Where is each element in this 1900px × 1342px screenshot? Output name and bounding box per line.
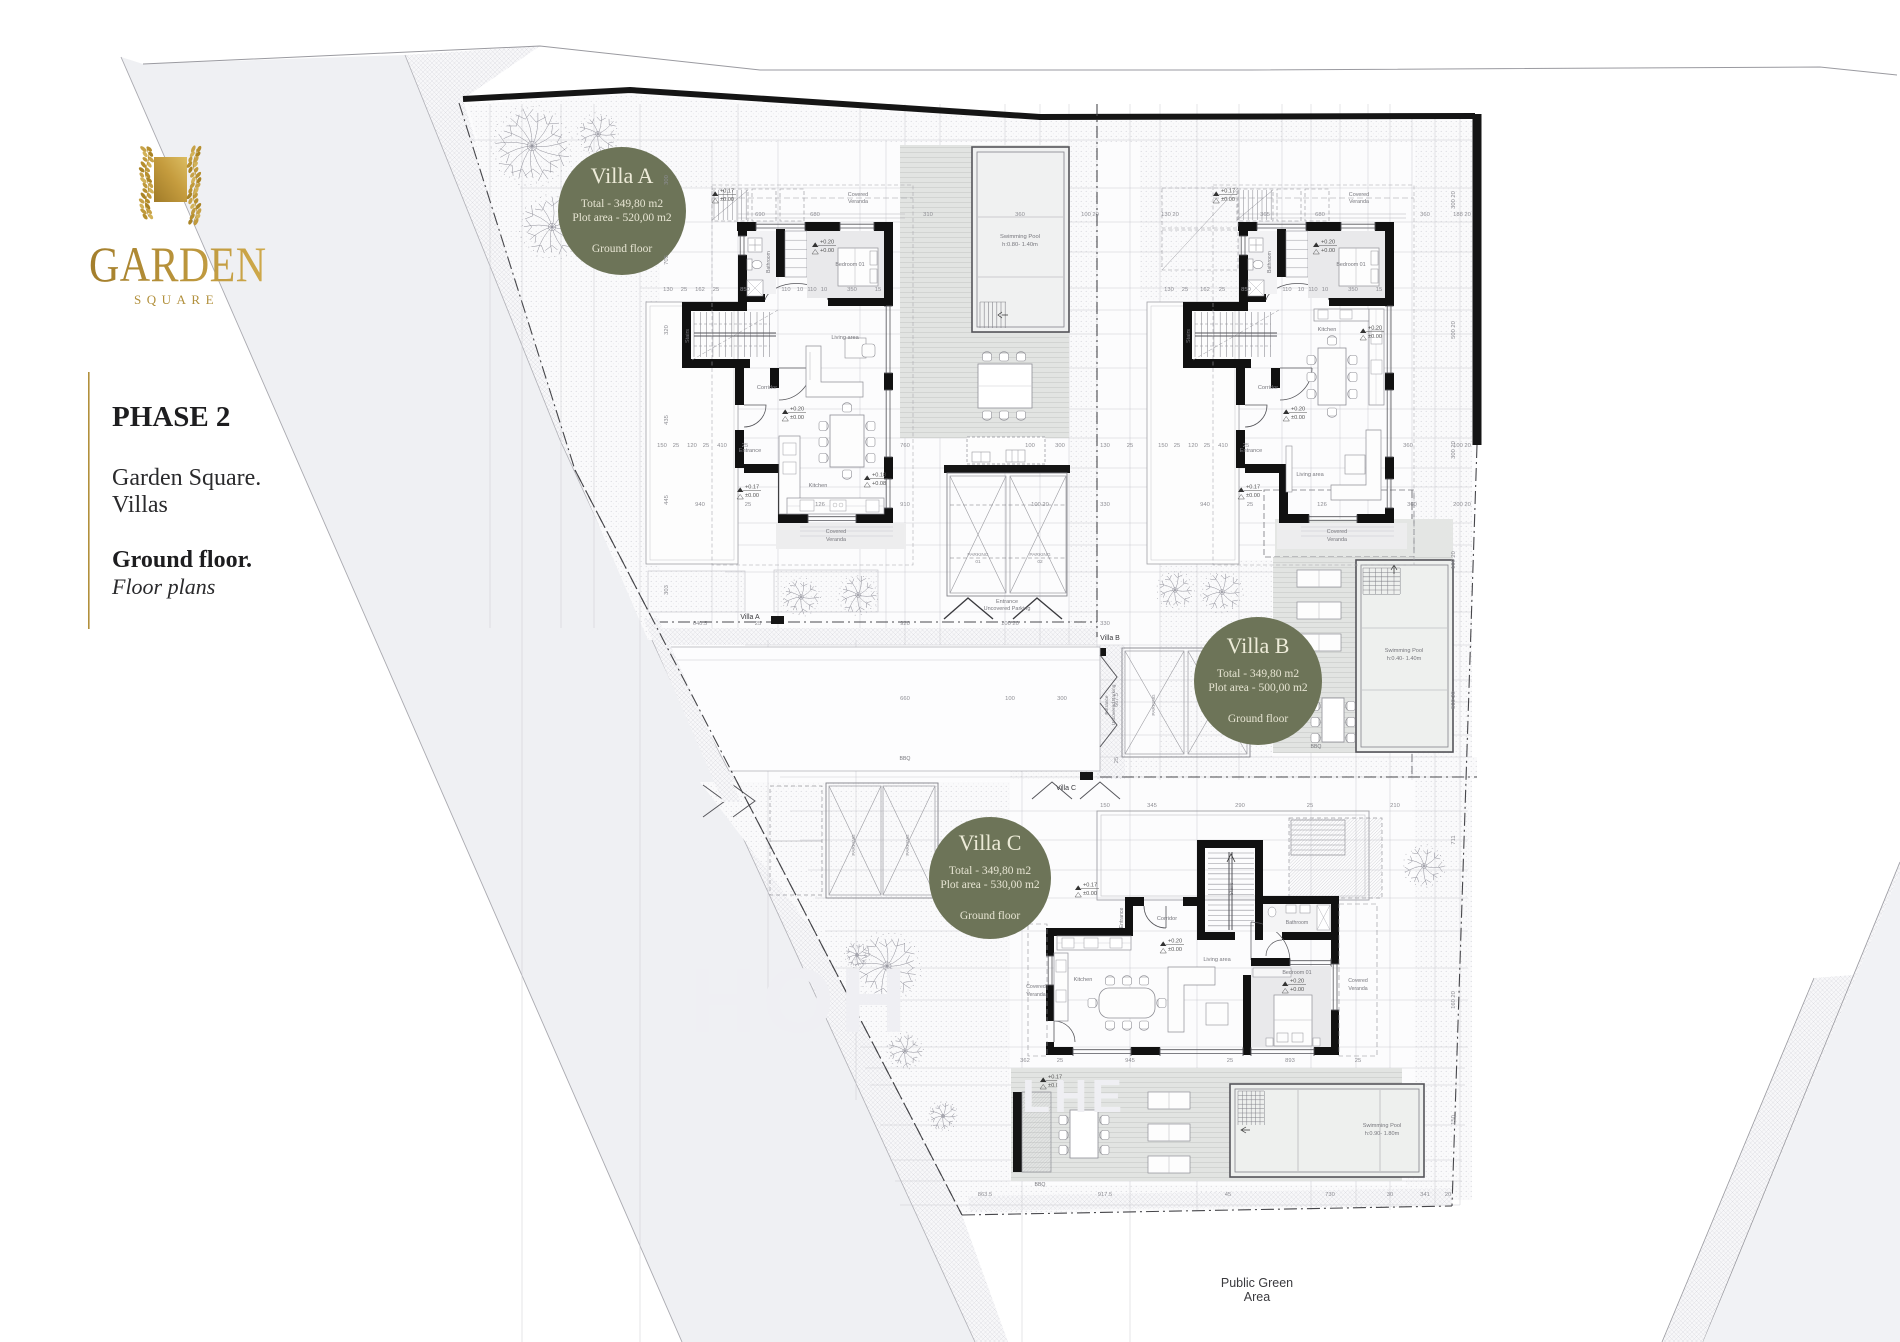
svg-text:+0.17: +0.17 bbox=[720, 189, 734, 195]
svg-text:130: 130 bbox=[1164, 287, 1174, 293]
svg-text:Kitchen: Kitchen bbox=[1318, 327, 1337, 333]
svg-text:Ground floor: Ground floor bbox=[960, 910, 1021, 922]
svg-text:h:0.90- 1.80m: h:0.90- 1.80m bbox=[1365, 1131, 1400, 1137]
svg-text:Ground floor.: Ground floor. bbox=[112, 547, 252, 573]
svg-text:PARKING: PARKING bbox=[1029, 552, 1051, 558]
svg-text:Villa B: Villa B bbox=[1100, 635, 1120, 642]
svg-text:Bathroom: Bathroom bbox=[1267, 251, 1273, 273]
svg-text:410: 410 bbox=[717, 443, 727, 449]
svg-text:25: 25 bbox=[1127, 443, 1133, 449]
svg-text:+0.20: +0.20 bbox=[1291, 407, 1305, 413]
svg-text:h:0.40- 1.40m: h:0.40- 1.40m bbox=[1387, 656, 1422, 662]
svg-text:Bedroom 01: Bedroom 01 bbox=[835, 262, 864, 268]
svg-text:680: 680 bbox=[810, 212, 820, 218]
svg-text:01: 01 bbox=[975, 559, 981, 565]
svg-text:+0.20: +0.20 bbox=[1290, 979, 1304, 985]
svg-text:910: 910 bbox=[900, 502, 910, 508]
svg-text:+0.17: +0.17 bbox=[1083, 883, 1097, 889]
svg-text:410: 410 bbox=[1218, 443, 1228, 449]
svg-text:10: 10 bbox=[797, 287, 803, 293]
svg-text:45: 45 bbox=[1225, 1192, 1231, 1198]
svg-text:350: 350 bbox=[847, 287, 857, 293]
svg-text:300 20: 300 20 bbox=[1451, 441, 1457, 459]
svg-text:120: 120 bbox=[1188, 443, 1198, 449]
svg-text:Covered: Covered bbox=[1349, 192, 1369, 198]
svg-text:210: 210 bbox=[1390, 803, 1400, 809]
svg-text:25: 25 bbox=[681, 287, 687, 293]
svg-text:+0.17: +0.17 bbox=[1246, 485, 1260, 491]
svg-text:Living area: Living area bbox=[831, 335, 859, 341]
svg-text:362: 362 bbox=[1020, 1058, 1030, 1064]
svg-text:±0.00: ±0.00 bbox=[1246, 493, 1260, 499]
svg-text:310: 310 bbox=[923, 212, 933, 218]
svg-text:730: 730 bbox=[1325, 1192, 1335, 1198]
svg-text:341: 341 bbox=[1420, 1192, 1430, 1198]
svg-text:±0.00: ±0.00 bbox=[790, 415, 804, 421]
svg-text:±0.00: ±0.00 bbox=[745, 493, 759, 499]
svg-text:640.5: 640.5 bbox=[693, 621, 708, 627]
svg-text:160 20: 160 20 bbox=[1451, 991, 1457, 1009]
svg-text:360: 360 bbox=[1420, 212, 1430, 218]
svg-text:300: 300 bbox=[664, 175, 670, 185]
svg-text:445: 445 bbox=[664, 495, 670, 505]
svg-text:25: 25 bbox=[1219, 287, 1225, 293]
svg-text:Entrance: Entrance bbox=[1104, 695, 1110, 715]
svg-text:+0.20: +0.20 bbox=[1321, 240, 1335, 246]
svg-text:300: 300 bbox=[1057, 696, 1067, 702]
svg-text:365: 365 bbox=[1260, 212, 1270, 218]
svg-text:320: 320 bbox=[664, 325, 670, 335]
svg-text:+0.20: +0.20 bbox=[820, 240, 834, 246]
svg-text:BBQ: BBQ bbox=[900, 756, 911, 762]
svg-text:GARDEN: GARDEN bbox=[89, 237, 266, 292]
svg-text:LHE: LHE bbox=[1022, 1070, 1126, 1122]
svg-text:150: 150 bbox=[1158, 443, 1168, 449]
svg-text:Swimming Pool: Swimming Pool bbox=[1363, 1123, 1402, 1129]
svg-text:Villa A: Villa A bbox=[740, 614, 760, 621]
svg-text:188 20: 188 20 bbox=[1453, 212, 1471, 218]
svg-text:150: 150 bbox=[1451, 1115, 1457, 1125]
svg-text:945: 945 bbox=[1125, 1058, 1135, 1064]
svg-text:+0.17: +0.17 bbox=[745, 485, 759, 491]
svg-text:100 20: 100 20 bbox=[1031, 502, 1049, 508]
svg-text:330: 330 bbox=[1100, 621, 1110, 627]
svg-text:200 20: 200 20 bbox=[1453, 502, 1471, 508]
svg-text:290: 290 bbox=[1235, 803, 1245, 809]
svg-text:110: 110 bbox=[1308, 287, 1317, 293]
svg-text:940: 940 bbox=[1200, 502, 1210, 508]
svg-text:705: 705 bbox=[664, 255, 670, 265]
svg-text:893: 893 bbox=[1285, 1058, 1295, 1064]
svg-text:Veranda: Veranda bbox=[848, 199, 868, 205]
svg-text:350: 350 bbox=[1348, 287, 1358, 293]
svg-text:Public Green: Public Green bbox=[1221, 1276, 1293, 1290]
svg-text:Corridor: Corridor bbox=[1258, 385, 1278, 391]
svg-text:Entrance: Entrance bbox=[996, 599, 1018, 605]
svg-text:Total - 349,80 m2: Total - 349,80 m2 bbox=[949, 865, 1031, 877]
svg-text:±0.00: ±0.00 bbox=[1291, 415, 1305, 421]
svg-text:500 20: 500 20 bbox=[1451, 321, 1457, 339]
svg-text:711: 711 bbox=[1451, 835, 1457, 844]
svg-text:100 20: 100 20 bbox=[1081, 212, 1099, 218]
svg-text:+0.20: +0.20 bbox=[1168, 939, 1182, 945]
svg-text:+0.08: +0.08 bbox=[872, 481, 886, 487]
svg-text:850: 850 bbox=[740, 287, 750, 293]
svg-text:25: 25 bbox=[755, 621, 761, 627]
svg-text:Veranda: Veranda bbox=[1349, 199, 1369, 205]
svg-text:+0.20: +0.20 bbox=[1368, 326, 1382, 332]
svg-text:360: 360 bbox=[1407, 502, 1417, 508]
svg-text:PARKING: PARKING bbox=[851, 834, 857, 856]
svg-text:30: 30 bbox=[1387, 1192, 1393, 1198]
svg-text:Living area: Living area bbox=[1296, 472, 1324, 478]
svg-text:100 20: 100 20 bbox=[1001, 621, 1019, 627]
svg-text:300 20: 300 20 bbox=[1451, 191, 1457, 209]
svg-text:Stairs: Stairs bbox=[1186, 329, 1192, 343]
svg-text:10: 10 bbox=[821, 287, 827, 293]
svg-text:+0.20: +0.20 bbox=[790, 407, 804, 413]
svg-text:25: 25 bbox=[745, 502, 751, 508]
svg-text:920: 920 bbox=[900, 621, 910, 627]
svg-text:360: 360 bbox=[1015, 212, 1025, 218]
svg-text:+0.00: +0.00 bbox=[820, 248, 834, 254]
svg-text:150: 150 bbox=[1100, 803, 1110, 809]
svg-text:h:0.80- 1.40m: h:0.80- 1.40m bbox=[1002, 242, 1038, 248]
svg-text:Corridor: Corridor bbox=[757, 385, 777, 391]
svg-text:500 20: 500 20 bbox=[1451, 691, 1457, 709]
svg-text:Floor plans: Floor plans bbox=[111, 574, 215, 599]
svg-text:100: 100 bbox=[1005, 696, 1015, 702]
svg-text:Bedroom 01: Bedroom 01 bbox=[1336, 262, 1365, 268]
svg-text:Covered: Covered bbox=[848, 192, 868, 198]
svg-text:Villa C: Villa C bbox=[959, 830, 1022, 855]
svg-text:303: 303 bbox=[664, 585, 670, 595]
svg-text:25: 25 bbox=[1243, 443, 1249, 449]
svg-text:150: 150 bbox=[657, 443, 667, 449]
svg-text:25: 25 bbox=[673, 443, 679, 449]
svg-text:20: 20 bbox=[1445, 1192, 1451, 1198]
svg-text:863.5: 863.5 bbox=[978, 1192, 993, 1198]
svg-text:BBQ: BBQ bbox=[1035, 1182, 1046, 1188]
svg-text:Ground floor: Ground floor bbox=[1228, 713, 1289, 725]
svg-text:25: 25 bbox=[1355, 1058, 1361, 1064]
svg-text:±0.00: ±0.00 bbox=[1221, 197, 1235, 203]
svg-text:Veranda: Veranda bbox=[1348, 986, 1367, 992]
svg-text:760: 760 bbox=[900, 443, 910, 449]
svg-text:25: 25 bbox=[1247, 502, 1253, 508]
svg-text:110: 110 bbox=[781, 287, 790, 293]
svg-text:HOH: HOH bbox=[690, 950, 912, 1052]
svg-text:Entrance: Entrance bbox=[1119, 908, 1125, 929]
svg-text:±0.00: ±0.00 bbox=[1083, 891, 1097, 897]
svg-text:Veranda: Veranda bbox=[826, 537, 846, 543]
svg-text:Plot area - 530,00 m2: Plot area - 530,00 m2 bbox=[940, 879, 1040, 891]
svg-text:10: 10 bbox=[1322, 287, 1328, 293]
svg-text:±0.00: ±0.00 bbox=[720, 197, 734, 203]
svg-text:Kitchen: Kitchen bbox=[1074, 977, 1093, 983]
svg-text:Garden Square.: Garden Square. bbox=[112, 465, 261, 491]
svg-text:PHASE 2: PHASE 2 bbox=[112, 401, 230, 433]
svg-text:Corridor: Corridor bbox=[1157, 916, 1177, 922]
svg-text:345: 345 bbox=[1147, 803, 1157, 809]
svg-text:+0.18: +0.18 bbox=[872, 473, 886, 479]
svg-text:±0.00: ±0.00 bbox=[1168, 947, 1182, 953]
svg-text:110: 110 bbox=[807, 287, 816, 293]
svg-text:Bathroom: Bathroom bbox=[766, 251, 772, 273]
svg-text:130: 130 bbox=[1100, 443, 1110, 449]
svg-text:15: 15 bbox=[875, 287, 881, 293]
svg-text:02: 02 bbox=[1037, 559, 1043, 565]
svg-text:SQUARE: SQUARE bbox=[134, 292, 219, 307]
svg-text:Covered: Covered bbox=[1327, 529, 1347, 535]
svg-text:126: 126 bbox=[1317, 502, 1327, 508]
svg-text:Veranda: Veranda bbox=[1327, 537, 1347, 543]
svg-text:Uncovered Parking: Uncovered Parking bbox=[984, 606, 1031, 612]
svg-text:Villa B: Villa B bbox=[1227, 633, 1290, 658]
svg-text:Stairs: Stairs bbox=[1229, 882, 1235, 896]
svg-text:+0.00: +0.00 bbox=[1321, 248, 1335, 254]
svg-text:130: 130 bbox=[663, 287, 673, 293]
svg-text:Villas: Villas bbox=[112, 492, 168, 518]
svg-text:Total - 349,80 m2: Total - 349,80 m2 bbox=[581, 198, 663, 210]
svg-text:Covered: Covered bbox=[1348, 978, 1368, 984]
svg-text:Bathroom: Bathroom bbox=[1286, 920, 1309, 926]
svg-text:25: 25 bbox=[1174, 443, 1180, 449]
svg-text:25: 25 bbox=[1057, 1058, 1063, 1064]
svg-text:660: 660 bbox=[900, 696, 910, 702]
svg-text:Plot area - 520,00 m2: Plot area - 520,00 m2 bbox=[572, 212, 672, 224]
svg-text:Living area: Living area bbox=[1203, 957, 1231, 963]
svg-text:Swimming Pool: Swimming Pool bbox=[1000, 234, 1040, 240]
svg-text:360: 360 bbox=[1403, 443, 1413, 449]
svg-text:690: 690 bbox=[755, 212, 765, 218]
svg-text:Area: Area bbox=[1244, 1290, 1270, 1304]
svg-text:Stairs: Stairs bbox=[685, 329, 691, 343]
svg-text:667.5: 667.5 bbox=[1114, 693, 1120, 707]
svg-text:162: 162 bbox=[695, 287, 705, 293]
svg-text:120: 120 bbox=[687, 443, 697, 449]
svg-text:25: 25 bbox=[703, 443, 709, 449]
svg-text:25: 25 bbox=[1227, 1058, 1233, 1064]
svg-text:25: 25 bbox=[1204, 443, 1210, 449]
svg-text:10: 10 bbox=[1298, 287, 1304, 293]
svg-text:BBQ: BBQ bbox=[1311, 744, 1322, 750]
svg-text:680: 680 bbox=[1315, 212, 1325, 218]
svg-text:130 20: 130 20 bbox=[1161, 212, 1179, 218]
svg-text:300: 300 bbox=[1055, 443, 1065, 449]
svg-text:25: 25 bbox=[1307, 803, 1313, 809]
svg-text:100: 100 bbox=[1025, 443, 1035, 449]
svg-text:PARKING: PARKING bbox=[967, 552, 989, 558]
svg-text:25: 25 bbox=[1114, 757, 1120, 763]
svg-text:Plot area - 500,00 m2: Plot area - 500,00 m2 bbox=[1208, 682, 1308, 694]
svg-text:25: 25 bbox=[1182, 287, 1188, 293]
svg-text:Villa A: Villa A bbox=[591, 163, 654, 188]
svg-text:15: 15 bbox=[1376, 287, 1382, 293]
svg-text:162: 162 bbox=[1200, 287, 1210, 293]
svg-text:±0.00: ±0.00 bbox=[1368, 334, 1382, 340]
svg-text:435: 435 bbox=[664, 415, 670, 425]
svg-text:Covered: Covered bbox=[826, 529, 846, 535]
svg-text:Kitchen: Kitchen bbox=[809, 483, 828, 489]
svg-text:Swimming Pool: Swimming Pool bbox=[1385, 648, 1424, 654]
svg-text:Total - 349,80 m2: Total - 349,80 m2 bbox=[1217, 668, 1299, 680]
svg-text:PARKING: PARKING bbox=[905, 834, 911, 856]
svg-text:110: 110 bbox=[1282, 287, 1291, 293]
svg-text:PARKING: PARKING bbox=[1151, 694, 1157, 716]
svg-text:100 20: 100 20 bbox=[1451, 551, 1457, 569]
svg-text:940: 940 bbox=[695, 502, 705, 508]
svg-text:Veranda: Veranda bbox=[1026, 992, 1045, 998]
svg-text:Bedroom 01: Bedroom 01 bbox=[1282, 970, 1311, 976]
svg-text:330: 330 bbox=[1100, 502, 1110, 508]
svg-text:Covered: Covered bbox=[1026, 984, 1046, 990]
svg-text:+0.00: +0.00 bbox=[1290, 987, 1304, 993]
svg-text:850: 850 bbox=[1241, 287, 1251, 293]
svg-text:25: 25 bbox=[713, 287, 719, 293]
svg-text:917.5: 917.5 bbox=[1098, 1192, 1113, 1198]
svg-text:126: 126 bbox=[815, 502, 825, 508]
svg-text:25: 25 bbox=[742, 443, 748, 449]
svg-text:Ground floor: Ground floor bbox=[592, 243, 653, 255]
